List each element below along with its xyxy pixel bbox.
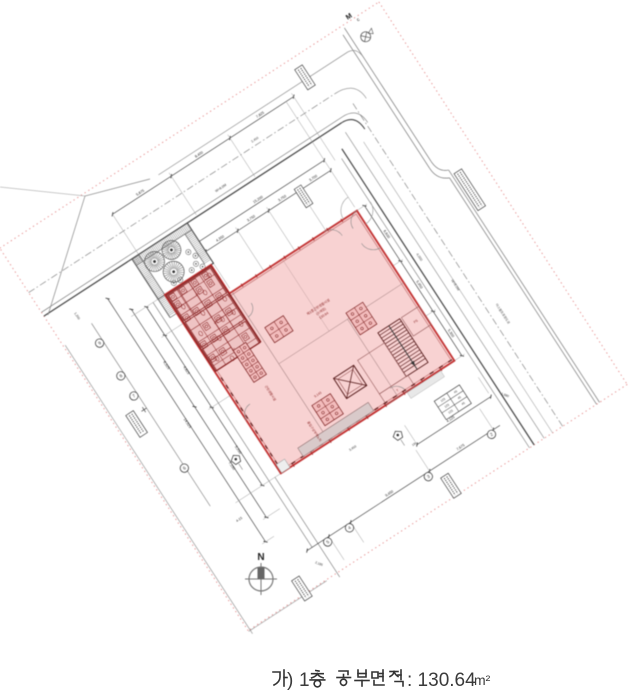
svg-text:M: M (345, 12, 354, 21)
svg-text:4,350: 4,350 (215, 234, 225, 242)
svg-text:c: c (356, 17, 362, 24)
svg-text:8,400: 8,400 (194, 150, 204, 158)
svg-text:7,825: 7,825 (255, 111, 265, 119)
svg-text:5,950: 5,950 (415, 280, 423, 290)
svg-text:5,875: 5,875 (135, 189, 145, 197)
svg-text:W=8.0M: W=8.0M (450, 279, 460, 292)
svg-text:아스팔트포장도로: 아스팔트포장도로 (495, 302, 512, 324)
svg-text:9,450: 9,450 (384, 489, 394, 497)
svg-text:3,750: 3,750 (246, 214, 256, 222)
svg-text:2,450: 2,450 (250, 136, 259, 144)
svg-text:3,450: 3,450 (348, 444, 357, 452)
svg-text:14,525: 14,525 (183, 418, 192, 429)
svg-text:1: 1 (299, 670, 310, 691)
svg-text:1,200: 1,200 (73, 311, 81, 320)
svg-text:N: N (257, 552, 264, 563)
svg-text:7,675: 7,675 (456, 443, 466, 451)
svg-text:: 130.64: : 130.64 (407, 670, 476, 691)
svg-text:6,600: 6,600 (382, 229, 390, 239)
svg-text:): ) (287, 670, 293, 691)
svg-text:1,980: 1,980 (501, 392, 510, 399)
svg-text:4,000: 4,000 (415, 252, 423, 261)
svg-text:W=6.0M: W=6.0M (214, 183, 227, 193)
svg-text:m²: m² (474, 672, 491, 688)
svg-text:4,825: 4,825 (182, 365, 190, 375)
svg-text:5,300: 5,300 (447, 328, 455, 338)
svg-text:6,325: 6,325 (162, 360, 170, 370)
svg-text:3,700: 3,700 (308, 174, 318, 182)
svg-text:4-15: 4-15 (235, 516, 243, 523)
svg-text:5,200: 5,200 (234, 445, 242, 455)
svg-text:2,185: 2,185 (314, 560, 323, 567)
svg-text:3,750: 3,750 (277, 194, 287, 202)
